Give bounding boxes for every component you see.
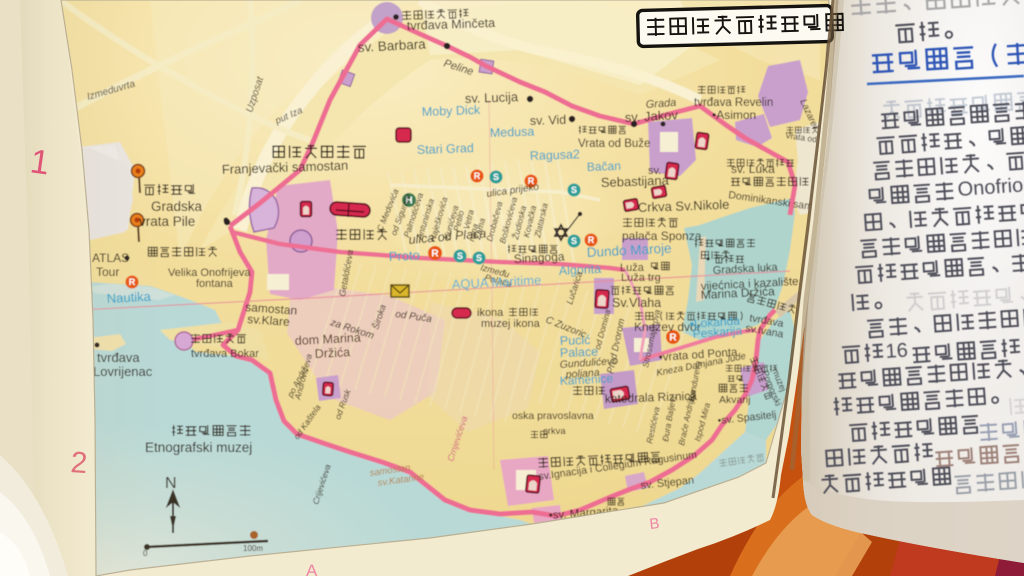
svg-text:Sv.Vlaha: Sv.Vlaha — [612, 296, 661, 310]
svg-text:Luža trg: Luža trg — [621, 272, 661, 284]
svg-text:2: 2 — [70, 446, 89, 480]
svg-text:S: S — [571, 236, 577, 246]
svg-text:Bačan: Bačan — [587, 159, 621, 174]
svg-text:Vrata od Buže: Vrata od Buže — [578, 138, 650, 150]
svg-text:sv. Luka: sv. Luka — [731, 162, 775, 176]
svg-text:sv. Jakov: sv. Jakov — [624, 107, 678, 125]
svg-text:•Asimon: •Asimon — [712, 108, 756, 122]
svg-text:palača Sponza: palača Sponza — [622, 229, 702, 243]
svg-text:sv. Vid: sv. Vid — [530, 113, 567, 128]
svg-text:R: R — [431, 249, 439, 260]
svg-text:•: • — [706, 252, 710, 266]
svg-text:Sebastijana: Sebastijana — [601, 173, 670, 190]
svg-text:crkva: crkva — [543, 426, 566, 437]
svg-text:Sinagoga: Sinagoga — [513, 249, 565, 266]
svg-text:16: 16 — [885, 339, 909, 362]
svg-text:S: S — [571, 185, 577, 195]
svg-text:Medusa: Medusa — [490, 124, 535, 140]
svg-text:A: A — [306, 561, 318, 576]
svg-text:muzej ikona: muzej ikona — [481, 318, 541, 330]
svg-text:S: S — [493, 172, 499, 182]
svg-text:B: B — [649, 515, 661, 533]
svg-text:R: R — [669, 333, 677, 344]
svg-text:Akvarij: Akvarij — [719, 394, 751, 406]
svg-text:S: S — [476, 253, 482, 263]
svg-text:Crkva Sv.Nikole: Crkva Sv.Nikole — [638, 197, 730, 215]
svg-text:Stari Grad: Stari Grad — [417, 141, 474, 157]
svg-text:Kamenice: Kamenice — [559, 371, 613, 388]
svg-text:Moby Dick: Moby Dick — [422, 103, 482, 119]
svg-text:R: R — [474, 171, 481, 181]
svg-text:oska pravoslavna: oska pravoslavna — [512, 410, 594, 422]
svg-text:S: S — [457, 251, 463, 261]
svg-text:Ragusa2: Ragusa2 — [530, 147, 581, 163]
